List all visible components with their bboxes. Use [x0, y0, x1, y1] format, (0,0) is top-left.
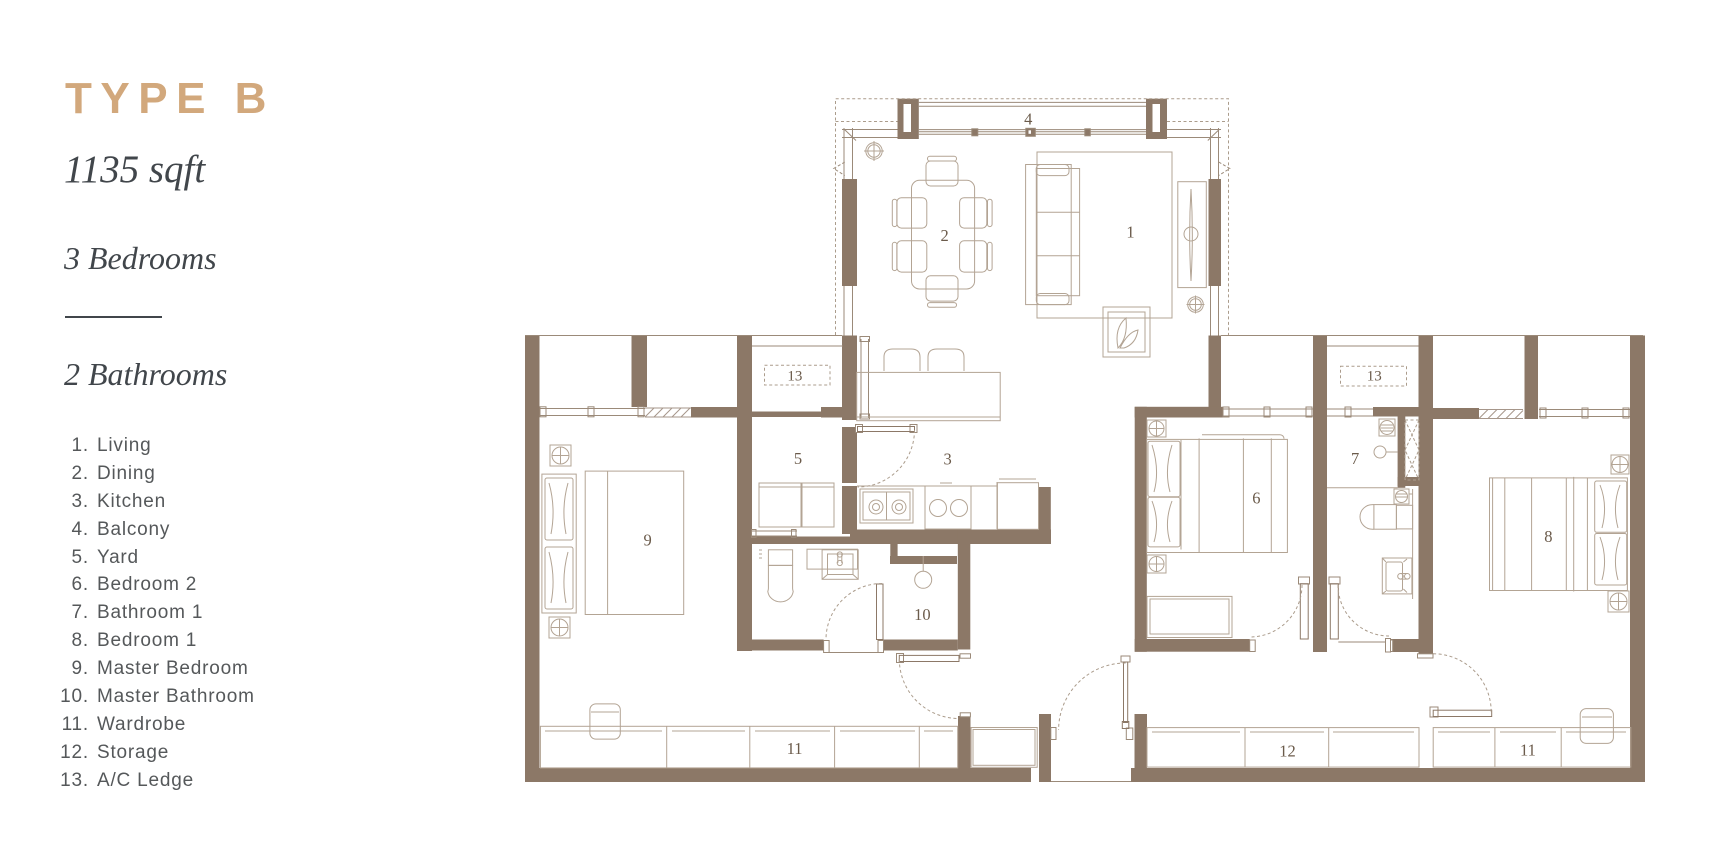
svg-text:5: 5 [794, 449, 802, 468]
svg-text:13: 13 [787, 369, 802, 385]
svg-text:3: 3 [943, 450, 951, 469]
svg-text:6: 6 [1252, 489, 1260, 508]
svg-text:8: 8 [1544, 527, 1552, 546]
svg-text:7: 7 [1351, 449, 1359, 468]
svg-text:12: 12 [1279, 741, 1296, 760]
svg-text:13: 13 [1367, 368, 1382, 384]
svg-text:11: 11 [787, 739, 803, 758]
svg-text:2: 2 [940, 226, 948, 245]
svg-text:9: 9 [643, 531, 651, 550]
svg-text:1: 1 [1126, 222, 1134, 241]
svg-text:10: 10 [914, 605, 931, 624]
svg-text:4: 4 [1024, 109, 1032, 128]
svg-text:11: 11 [1520, 741, 1536, 760]
